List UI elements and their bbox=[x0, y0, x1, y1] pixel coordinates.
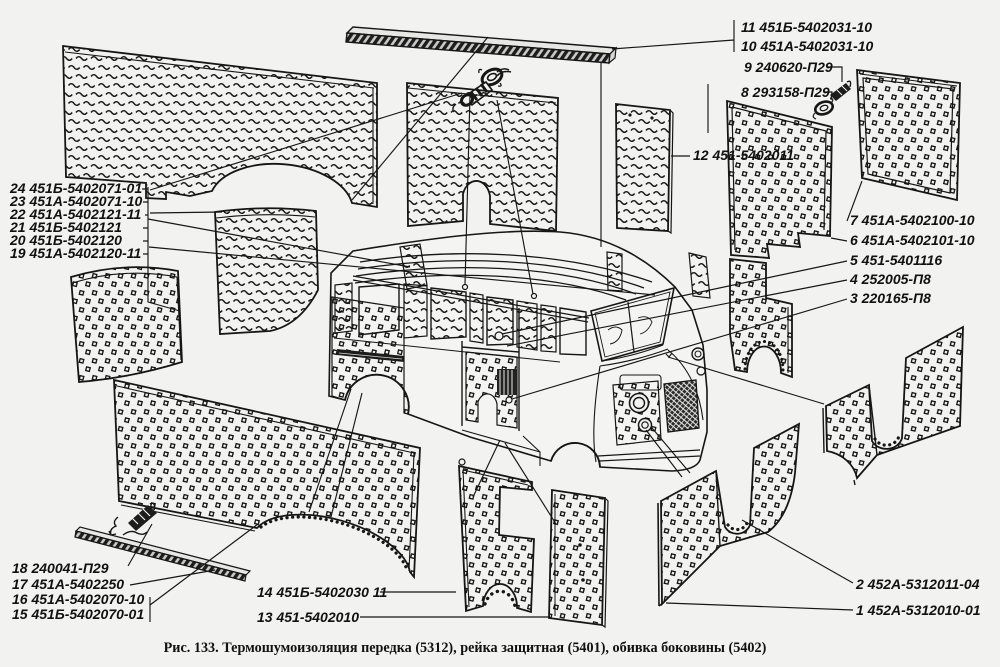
svg-text:6 451А-5402101-10: 6 451А-5402101-10 bbox=[850, 232, 975, 248]
svg-text:12 451-5402011: 12 451-5402011 bbox=[693, 147, 794, 163]
svg-text:19 451А-5402120-11: 19 451А-5402120-11 bbox=[10, 245, 142, 261]
svg-text:16 451А-5402070-10: 16 451А-5402070-10 bbox=[12, 591, 145, 607]
svg-text:8 293158-П29: 8 293158-П29 bbox=[741, 84, 830, 100]
svg-text:17 451А-5402250: 17 451А-5402250 bbox=[12, 576, 124, 592]
svg-text:5 451-5401116: 5 451-5401116 bbox=[850, 252, 942, 268]
svg-text:2 452А-5312011-04: 2 452А-5312011-04 bbox=[855, 576, 980, 592]
svg-text:7 451А-5402100-10: 7 451А-5402100-10 bbox=[850, 212, 975, 228]
svg-text:3 220165-П8: 3 220165-П8 bbox=[850, 290, 931, 306]
svg-text:14 451Б-5402030 11: 14 451Б-5402030 11 bbox=[257, 584, 388, 600]
svg-text:10 451А-5402031-10: 10 451А-5402031-10 bbox=[741, 38, 874, 54]
svg-text:4 252005-П8: 4 252005-П8 bbox=[849, 271, 931, 287]
svg-text:1 452А-5312010-01: 1 452А-5312010-01 bbox=[856, 602, 981, 618]
svg-text:9 240620-П29: 9 240620-П29 bbox=[744, 59, 833, 75]
svg-text:15 451Б-5402070-01: 15 451Б-5402070-01 bbox=[12, 606, 144, 622]
svg-text:Рис. 133. Термошумоизоляция: Рис. 133. Термошумоизоляция передка (531… bbox=[164, 640, 767, 656]
svg-text:11 451Б-5402031-10: 11 451Б-5402031-10 bbox=[741, 19, 872, 35]
svg-text:13 451-5402010: 13 451-5402010 bbox=[257, 609, 359, 625]
svg-text:18 240041-П29: 18 240041-П29 bbox=[12, 560, 109, 576]
